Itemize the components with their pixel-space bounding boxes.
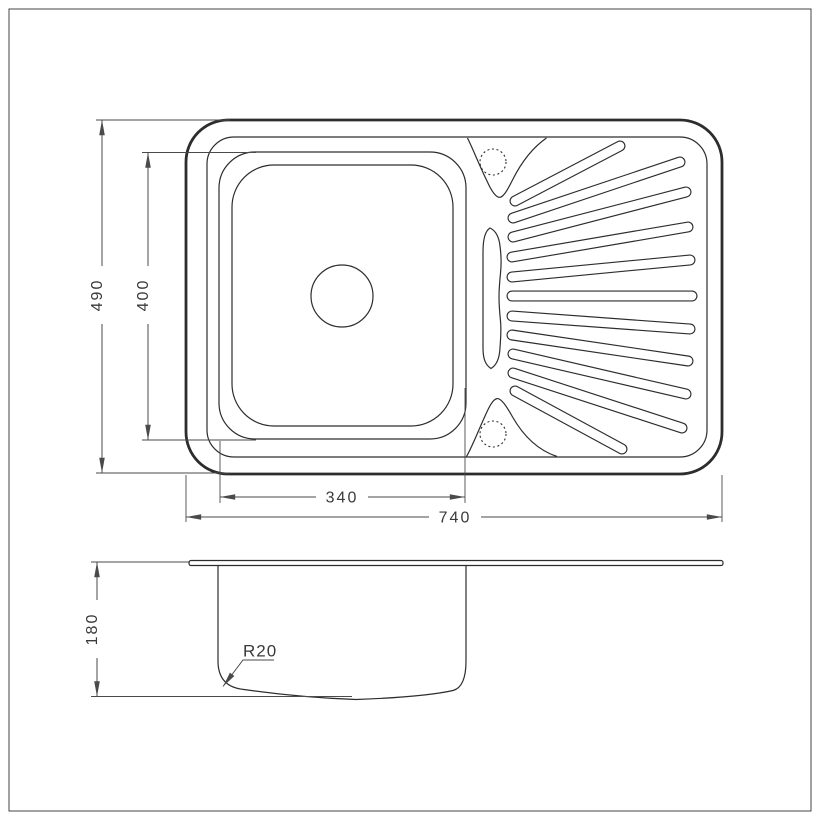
dim-label-basin-width: 340: [326, 490, 359, 507]
radius-leader-line: [223, 660, 274, 687]
tap-hole-top: [480, 149, 506, 175]
overflow-channel: [483, 228, 501, 369]
dim-label-depth: 180: [84, 613, 101, 646]
dim-label-height: 490: [89, 279, 106, 312]
drainboard-rib: [512, 316, 690, 329]
dim-label-basin-height: 400: [135, 279, 152, 312]
drainboard-ribs: [512, 146, 692, 449]
drain-hole: [311, 265, 373, 327]
basin-inner-edge: [232, 165, 453, 426]
drainboard-rib: [512, 260, 690, 277]
tap-hole-bottom: [480, 421, 506, 447]
dim-label-width: 740: [439, 510, 472, 527]
page-border: [9, 9, 811, 811]
basin-outer-edge: [219, 152, 466, 439]
rim-profile: [189, 561, 723, 566]
sink-technical-drawing: 490 400 340 740 180 R20: [0, 0, 820, 820]
sink-top-view: [186, 120, 722, 474]
drawing-canvas: 490 400 340 740 180 R20: [0, 0, 820, 820]
basin-profile: [218, 566, 466, 700]
radius-label: R20: [243, 642, 277, 661]
sink-side-view: [189, 561, 723, 700]
